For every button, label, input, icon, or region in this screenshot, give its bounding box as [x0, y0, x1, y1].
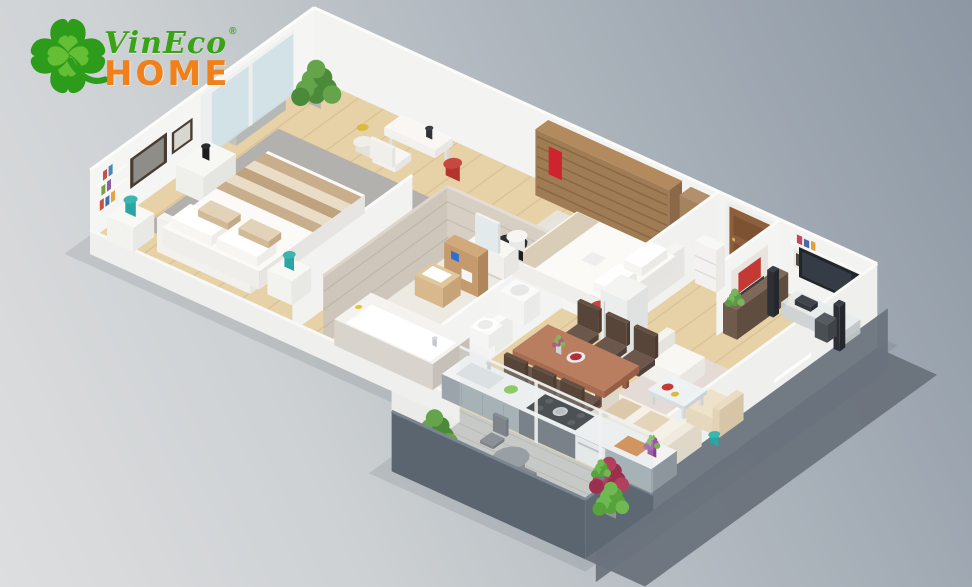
green-plant: [604, 482, 618, 496]
speaker: [767, 270, 773, 318]
console-plant: [725, 300, 732, 307]
palm-plant: [323, 85, 342, 104]
b2-mirror: [498, 223, 500, 255]
console-plant: [731, 289, 738, 296]
media-console: [723, 303, 737, 339]
fridge-handle: [604, 301, 605, 340]
vase-flowers: [552, 342, 557, 347]
logo-registered-mark: ®: [229, 26, 236, 37]
bath-shelf: [478, 250, 488, 297]
glass-door-mullion: [249, 60, 253, 127]
vineco-home-logo: VinEco ® HOME: [16, 4, 236, 108]
palm-plant: [307, 60, 326, 79]
balcony-chair-back: [506, 418, 508, 437]
balcony-palm: [426, 409, 443, 426]
small-plant: [597, 459, 604, 466]
green-plant: [616, 501, 630, 515]
small-plant: [591, 470, 598, 477]
floorplan-stage: VinEco ® HOME: [0, 0, 972, 587]
kitchen-flowers: [654, 443, 660, 449]
red-flowers: [589, 479, 604, 494]
palm-plant: [291, 88, 310, 107]
speaker: [773, 269, 779, 318]
console-plant: [737, 299, 744, 306]
vase-flowers: [560, 342, 565, 347]
glass-mullion: [534, 380, 538, 444]
dining-chair-back: [627, 321, 630, 346]
shoe-shelf: [716, 244, 725, 292]
dining-chair-back: [599, 308, 602, 333]
logo-text: VinEco ® HOME: [104, 30, 236, 90]
speaker: [840, 302, 846, 351]
logo-home: HOME: [104, 58, 236, 90]
vase-flowers: [556, 335, 561, 340]
dining-chair-back: [655, 334, 658, 359]
desk-chair-back: [392, 147, 395, 168]
green-plant: [593, 502, 607, 516]
small-plant: [604, 470, 611, 477]
